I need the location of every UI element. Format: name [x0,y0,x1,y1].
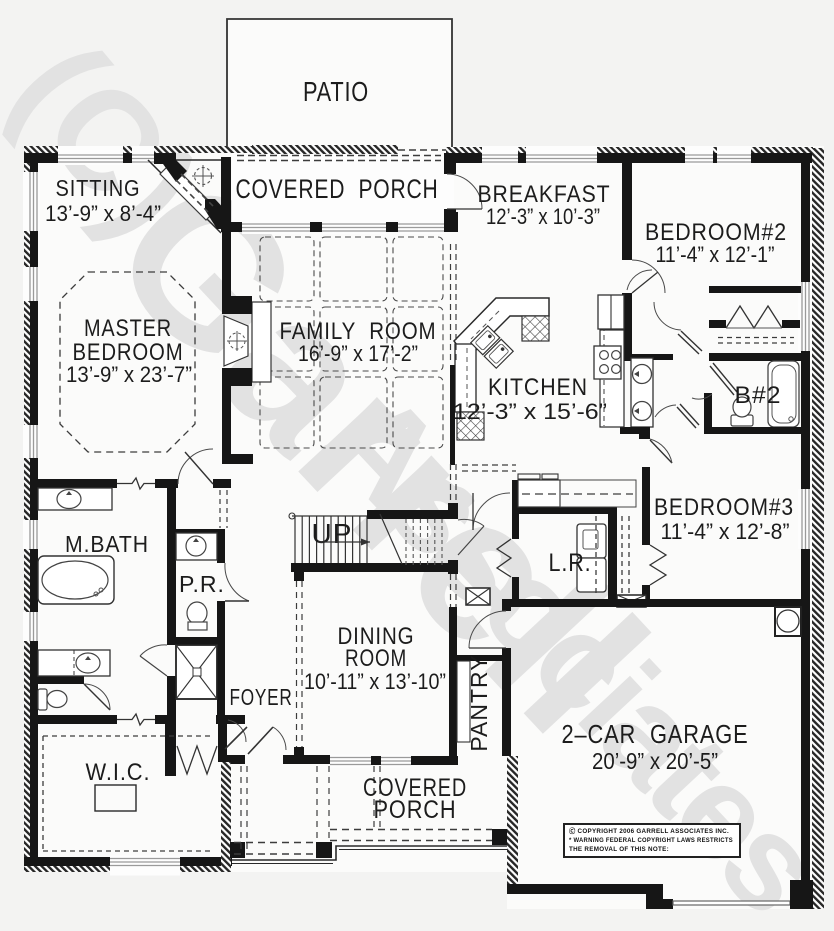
svg-text:BEDROOM#3: BEDROOM#3 [654,494,794,521]
svg-text:MASTER: MASTER [84,315,172,342]
svg-text:PANTRY: PANTRY [466,654,492,751]
svg-text:KITCHEN: KITCHEN [488,374,588,401]
svg-text:11’-4” x 12’-1”: 11’-4” x 12’-1” [656,242,775,267]
svg-text:11’-4” x 12’-8”: 11’-4” x 12’-8” [661,519,790,544]
svg-text:10’-11” x 13’-10”: 10’-11” x 13’-10” [304,669,446,694]
svg-text:THE REMOVAL OF THIS NOTE:: THE REMOVAL OF THIS NOTE: [569,846,669,853]
svg-text:* WARNING FEDERAL COPYRIGHT: * WARNING FEDERAL COPYRIGHT LAWS RESTRIC… [569,837,733,844]
svg-text:P.R.: P.R. [179,571,225,597]
svg-text:SITTING: SITTING [56,175,141,201]
svg-text:2–CAR GARAGE: 2–CAR GARAGE [562,719,749,749]
svg-text:12’-3” x 10’-3”: 12’-3” x 10’-3” [486,204,600,229]
svg-text:PORCH: PORCH [374,796,457,824]
svg-text:13’-9” x 8’-4”: 13’-9” x 8’-4” [45,201,161,226]
svg-text:16’-9” x 17’-2”: 16’-9” x 17’-2” [298,341,418,366]
svg-text:12’-3” x 15’-6”: 12’-3” x 15’-6” [453,399,607,424]
svg-text:PATIO: PATIO [303,76,369,107]
svg-text:W.I.C.: W.I.C. [86,759,151,786]
svg-text:20’-9” x 20’-5”: 20’-9” x 20’-5” [592,748,718,774]
svg-text:13’-9” x 23’-7”: 13’-9” x 23’-7” [66,362,192,387]
svg-text:B#2: B#2 [735,382,782,409]
svg-text:Ⓒ COPYRIGHT 2006 GARRELL ASSO: Ⓒ COPYRIGHT 2006 GARRELL ASSOCIATES INC. [569,826,729,835]
svg-text:FOYER: FOYER [230,684,293,710]
svg-text:ROOM: ROOM [345,645,407,672]
svg-text:M.BATH: M.BATH [65,531,149,557]
svg-text:UP: UP [312,518,353,549]
svg-text:COVERED PORCH: COVERED PORCH [236,174,439,204]
svg-text:L.R.: L.R. [549,549,592,577]
